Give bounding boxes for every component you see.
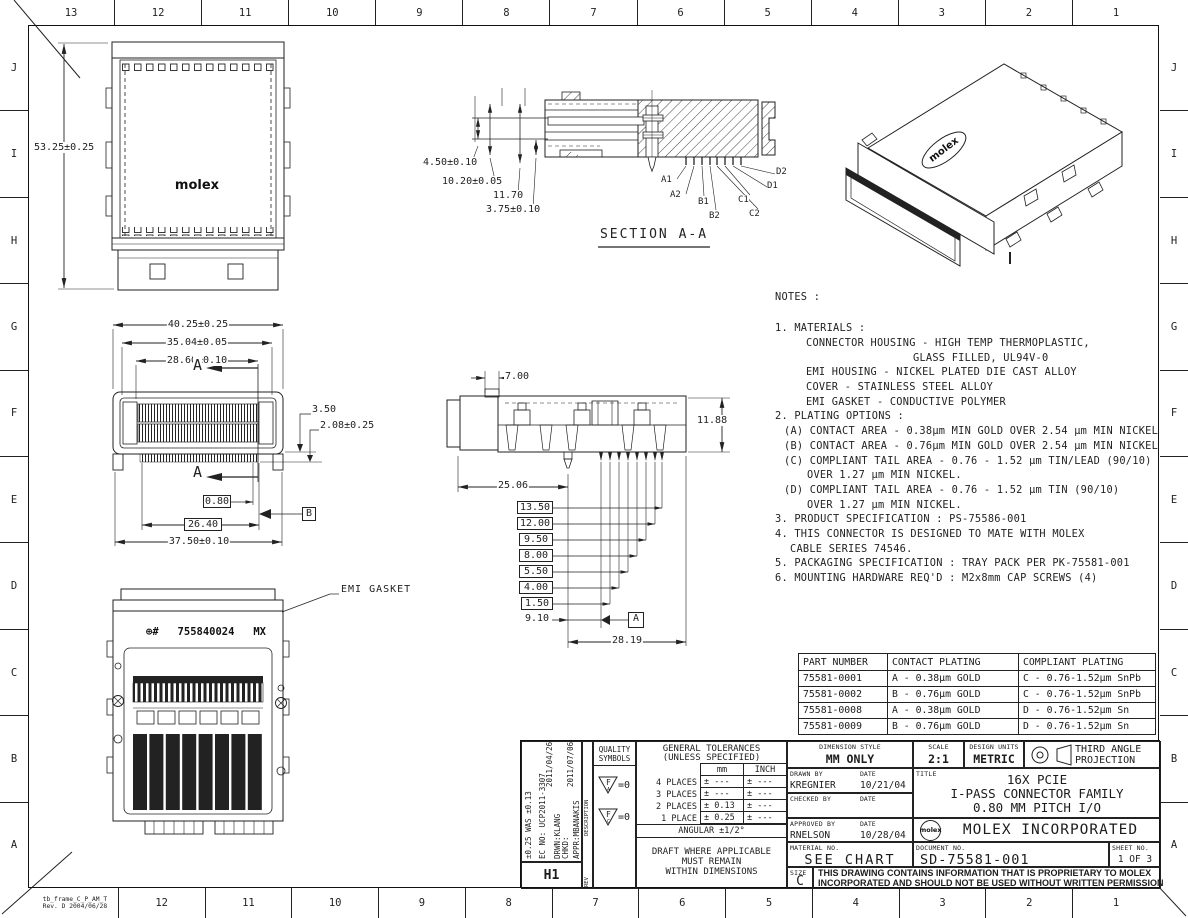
zone-col: 8 [462,0,549,25]
drawing-title-box: TITLE 16X PCIE I-PASS CONNECTOR FAMILY 0… [913,768,1161,818]
cell-compliant-plating: D - 0.76-1.52µm Sn [1018,703,1155,718]
svg-text:F: F [606,810,611,819]
revision-checked: CHKD: [561,836,570,859]
tol-row-mm: ± 0.25 [700,811,744,824]
part-marking-symbol: ⊕# [146,626,159,638]
zone-row: G [1160,283,1188,369]
pin-label-c2: C2 [749,209,760,219]
note-line: GLASS FILLED, UL94V-0 [913,352,1048,364]
checked-by-box: CHECKED BY DATE [787,793,913,818]
zone-col: 6 [637,0,724,25]
svg-text:A: A [607,787,610,793]
zone-col: 4 [811,0,898,25]
table-header-row: PART NUMBER CONTACT PLATING COMPLIANT PL… [799,654,1155,670]
note-line: CONNECTOR HOUSING - HIGH TEMP THERMOPLAS… [806,337,1090,349]
cell-part-number: 75581-0009 [799,719,887,734]
sheet-no-value: 1 OF 3 [1110,854,1160,865]
note-line: OVER 1.27 µm MIN NICKEL. [807,499,962,511]
zone-strip-bottom: tb_frame_C_P_AM_T Rev. D 2004/06/28 12 1… [28,888,1159,918]
dim-side-boxed-7: 1.50 [521,597,553,610]
note-line: 3. PRODUCT SPECIFICATION : PS-75586-001 [775,513,1027,525]
zone-row: D [1160,542,1188,628]
dim-side-boxed-4: 8.00 [519,549,553,562]
cell-contact-plating: B - 0.76µm GOLD [887,719,1018,734]
dimension-style-label: DIMENSION STYLE [788,743,912,751]
note-line: EMI HOUSING - NICKEL PLATED DIE CAST ALL… [806,366,1077,378]
title-label: TITLE [916,770,937,778]
material-no-value: SEE CHART [788,852,912,868]
dim-side-tail: 9.10 [524,613,550,624]
proprietary-line-2: INCORPORATED AND SHOULD NOT BE USED WITH… [818,878,1160,889]
zone-row: E [1160,456,1188,542]
zone-col: 12 [118,888,205,918]
sheet-no-label: SHEET NO. [1112,844,1149,852]
approved-by-value: RNELSON [790,830,830,841]
dim-side-boxed-5: 5.50 [519,565,553,578]
zone-row: I [1160,110,1188,196]
part-marking-number: 755840024 [178,626,235,638]
zone-row: A [1160,802,1188,888]
note-line: 1. MATERIALS : [775,322,865,334]
date-label: DATE [860,820,876,828]
zone-row: E [0,456,28,542]
tol-row-label: 1 PLACE [637,814,697,824]
table-row: 75581-0008 A - 0.38µm GOLD D - 0.76-1.52… [799,702,1155,718]
projection-text-2: PROJECTION [1075,755,1141,766]
zone-col: 5 [724,0,811,25]
col-header-contact-plating: CONTACT PLATING [887,654,1018,670]
quality-symbols-box: QUALITY SYMBOLS FA =0 FC =0 [593,741,636,889]
note-line: (C) COMPLIANT TAIL AREA - 0.76 - 1.52 µm… [784,455,1152,467]
section-mark-top: A [193,356,202,374]
molex-circle-logo: molex [920,820,941,841]
date-label: DATE [860,770,876,778]
zone-row: C [0,629,28,715]
section-mark-bottom: A [193,463,202,481]
zone-col: 12 [114,0,201,25]
size-box: SIZE C [787,867,813,889]
projection-box: THIRD ANGLE PROJECTION [1024,741,1161,768]
tol-row-label: 2 PLACES [637,802,697,812]
tol-draft-1: DRAFT WHERE APPLICABLE [636,847,787,857]
drawing-title-line-1: 16X PCIE [914,773,1160,787]
material-no-box: MATERIAL NO. SEE CHART [787,842,913,867]
datum-a-flag: A [628,612,644,628]
dim-front-tail-height: 3.50 [311,404,337,415]
cell-compliant-plating: C - 0.76-1.52µm SnPb [1018,687,1155,702]
quality-value-2: =0 [618,812,630,823]
col-header-compliant-plating: COMPLIANT PLATING [1018,654,1155,670]
cell-part-number: 75581-0008 [799,703,887,718]
drawn-by-label: DRAWN BY [790,770,823,778]
dim-section-4: 3.75±0.10 [485,204,541,215]
dim-side-span: 28.19 [611,635,643,646]
document-no-label: DOCUMENT NO. [916,844,965,852]
dim-front-span: 26.40 [184,518,222,531]
zone-col: 8 [465,888,552,918]
frame-file-name: tb_frame_C_P_AM_T [43,896,107,904]
zone-col: 9 [378,888,465,918]
zone-row: D [0,542,28,628]
proprietary-box: THIS DRAWING CONTAINS INFORMATION THAT I… [813,867,1161,889]
zone-row: B [1160,715,1188,801]
rev-label: REV [584,877,590,887]
cell-compliant-plating: D - 0.76-1.52µm Sn [1018,719,1155,734]
revision-code-cell: H1 [521,862,582,889]
scale-value: 2:1 [914,752,963,766]
cell-part-number: 75581-0002 [799,687,887,702]
zone-col: 1 [1072,888,1159,918]
dim-section-2: 10.20±0.05 [441,176,503,187]
zone-row: H [0,197,28,283]
cell-contact-plating: A - 0.38µm GOLD [887,671,1018,686]
zone-col: 3 [898,0,985,25]
zone-col: 1 [1072,0,1159,25]
cell-part-number: 75581-0001 [799,671,887,686]
drawn-by-box: DRAWN BY DATE KREGNIER 10/21/04 [787,768,913,793]
quality-title-1: QUALITY [594,742,635,754]
tol-row-label: 3 PLACES [637,790,697,800]
zone-strip-right: J I H G F E D C B A [1160,25,1188,888]
zone-col: 2 [985,888,1072,918]
zone-row: H [1160,197,1188,283]
drawing-title-line-2: I-PASS CONNECTOR FAMILY [914,787,1160,801]
material-no-label: MATERIAL NO. [790,844,839,852]
design-units-label: DESIGN UNITS [965,743,1023,751]
drawn-date-value: 10/21/04 [860,780,906,791]
zone-col: 7 [549,0,636,25]
dim-top-view-height: 53.25±0.25 [33,142,95,153]
note-line: 6. MOUNTING HARDWARE REQ'D : M2x8mm CAP … [775,572,1097,584]
sheet-no-box: SHEET NO. 1 OF 3 [1109,842,1161,867]
pin-label-b2: B2 [709,211,720,221]
dim-section-3: 11.70 [492,190,524,201]
table-row: 75581-0002 B - 0.76µm GOLD C - 0.76-1.52… [799,686,1155,702]
note-line: (D) COMPLIANT TAIL AREA - 0.76 - 1.52 µm… [784,484,1119,496]
datum-b-flag: B [302,507,316,521]
dim-side-boxed-6: 4.00 [519,581,553,594]
dim-section-1: 4.50±0.10 [422,157,478,168]
company-name: MOLEX INCORPORATED [941,822,1160,838]
flatness-triangle-icon: FC [598,808,618,826]
dim-side-boxed-3: 9.50 [519,533,553,546]
note-line: EMI GASKET - CONDUCTIVE POLYMER [806,396,1006,408]
projection-text-1: THIRD ANGLE [1075,744,1141,755]
zone-col: 10 [288,0,375,25]
revision-date-1: 2011/04/26 [545,742,554,787]
note-line: (A) CONTACT AREA - 0.38µm MIN GOLD OVER … [784,425,1158,437]
scale-label: SCALE [914,743,963,751]
zone-row: F [0,370,28,456]
zone-row: B [0,715,28,801]
company-box: molex MOLEX INCORPORATED [913,818,1161,842]
zone-col: 7 [552,888,639,918]
tol-angular: ANGULAR ±1/2° [636,824,787,838]
dim-front-pitch: 0.80 [203,495,231,508]
table-row: 75581-0009 B - 0.76µm GOLD D - 0.76-1.52… [799,718,1155,734]
dim-front-width-mid: 35.04±0.05 [166,337,228,348]
size-label: SIZE [790,869,806,877]
note-line: COVER - STAINLESS STEEL ALLOY [806,381,993,393]
quality-symbol-2: FC =0 [598,808,635,826]
pin-label-a1: A1 [661,175,672,185]
checked-by-label: CHECKED BY [790,795,831,803]
scale-box: SCALE 2:1 [913,741,964,768]
tol-row-label: 4 PLACES [637,778,697,788]
zone-row: J [0,25,28,110]
dim-front-width-bottom: 37.50±0.10 [168,536,230,547]
dimension-style-box: DIMENSION STYLE MM ONLY [787,741,913,768]
tol-draft-2: MUST REMAIN [636,857,787,867]
dim-side-boxed-2: 12.00 [517,517,553,530]
zone-row: F [1160,370,1188,456]
zone-row: G [0,283,28,369]
col-header-part-number: PART NUMBER [799,654,887,670]
note-line: 2. PLATING OPTIONS : [775,410,904,422]
approved-by-box: APPROVED BY DATE RNELSON 10/28/04 [787,818,913,842]
note-line: 4. THIS CONNECTOR IS DESIGNED TO MATE WI… [775,528,1085,540]
quality-symbol-1: FA =0 [598,776,635,794]
zone-col: 4 [812,888,899,918]
molex-logo-top-view: molex [175,178,219,193]
zone-row: J [1160,25,1188,110]
quality-title-2: SYMBOLS [594,754,635,766]
approved-by-label: APPROVED BY [790,820,835,828]
revision-code: H1 [544,868,560,883]
document-no-box: DOCUMENT NO. SD-75581-001 [913,842,1109,867]
quality-value-1: =0 [618,780,630,791]
zone-row: I [0,110,28,196]
zone-col: 2 [985,0,1072,25]
zone-col: 9 [375,0,462,25]
date-label: DATE [860,795,876,803]
note-line: 5. PACKAGING SPECIFICATION : TRAY PACK P… [775,557,1130,569]
approved-date-value: 10/28/04 [860,830,906,841]
drawn-by-value: KREGNIER [790,780,836,791]
zone-row: C [1160,629,1188,715]
flatness-triangle-icon: FA [598,776,618,794]
tol-draft-3: WITHIN DIMENSIONS [636,867,787,877]
notes-title: NOTES : [775,291,820,303]
third-angle-projection-icon [1029,744,1075,766]
tolerances-title-2: (UNLESS SPECIFIED) [636,753,787,763]
zone-col: 5 [725,888,812,918]
emi-gasket-callout: EMI GASKET [341,584,411,595]
design-units-value: METRIC [965,752,1023,766]
drawing-title-line-3: 0.80 MM PITCH I/O [914,801,1160,815]
dim-side-boxed-1: 13.50 [517,501,553,514]
part-number-table: PART NUMBER CONTACT PLATING COMPLIANT PL… [798,653,1156,735]
tol-row-inch: ± --- [743,811,787,824]
svg-text:F: F [606,778,611,787]
zone-col: 11 [205,888,292,918]
proprietary-line-1: THIS DRAWING CONTAINS INFORMATION THAT I… [818,868,1160,879]
dimension-style-value: MM ONLY [788,752,912,766]
dim-front-width-outer: 40.25±0.25 [167,319,229,330]
revision-change-text: ±0.25 WAS ±0.13 [524,791,533,859]
cell-compliant-plating: C - 0.76-1.52µm SnPb [1018,671,1155,686]
zone-col: 11 [201,0,288,25]
part-marking-suffix: MX [253,626,266,638]
note-line: CABLE SERIES 74546. [790,543,913,555]
dim-side-left: 25.06 [497,480,529,491]
zone-strip-left: J I H G F E D C B A [0,25,28,888]
svg-text:C: C [607,819,610,825]
zone-col: 3 [899,888,986,918]
dim-side-height: 11.88 [696,415,728,426]
part-marking: ⊕# 755840024 MX [146,626,266,638]
note-line: OVER 1.27 µm MIN NICKEL. [807,469,962,481]
pin-label-d1: D1 [767,181,778,191]
frame-file-reference: tb_frame_C_P_AM_T Rev. D 2004/06/28 [28,888,118,918]
dim-front-tail-offset: 2.08±0.25 [319,420,375,431]
pin-label-d2: D2 [776,167,787,177]
zone-row: A [0,802,28,888]
zone-col: 6 [638,888,725,918]
description-label: DESCRIPTION [584,800,590,836]
cell-contact-plating: B - 0.76µm GOLD [887,687,1018,702]
pin-label-c1: C1 [738,195,749,205]
dim-side-top: 7.00 [504,371,530,382]
pin-label-a2: A2 [670,190,681,200]
frame-file-rev: Rev. D 2004/06/28 [43,903,107,911]
revision-approved: APPR:MBANAKIS [572,800,581,859]
revision-date-2: 2011/07/06 [566,742,575,787]
document-no-value: SD-75581-001 [920,852,1108,868]
cell-contact-plating: A - 0.38µm GOLD [887,703,1018,718]
note-line: (B) CONTACT AREA - 0.76µm MIN GOLD OVER … [784,440,1158,452]
section-title: SECTION A-A [600,227,708,242]
engineering-drawing-sheet: 13 12 11 10 9 8 7 6 5 4 3 2 1 tb_frame_C… [0,0,1188,918]
title-block: ±0.25 WAS ±0.13 EC NO: UCP2011-3307 2011… [520,740,1160,888]
zone-col: 13 [28,0,114,25]
zone-col: 10 [291,888,378,918]
design-units-box: DESIGN UNITS METRIC [964,741,1024,768]
zone-strip-top: 13 12 11 10 9 8 7 6 5 4 3 2 1 [28,0,1159,25]
pin-label-b1: B1 [698,197,709,207]
table-row: 75581-0001 A - 0.38µm GOLD C - 0.76-1.52… [799,670,1155,686]
